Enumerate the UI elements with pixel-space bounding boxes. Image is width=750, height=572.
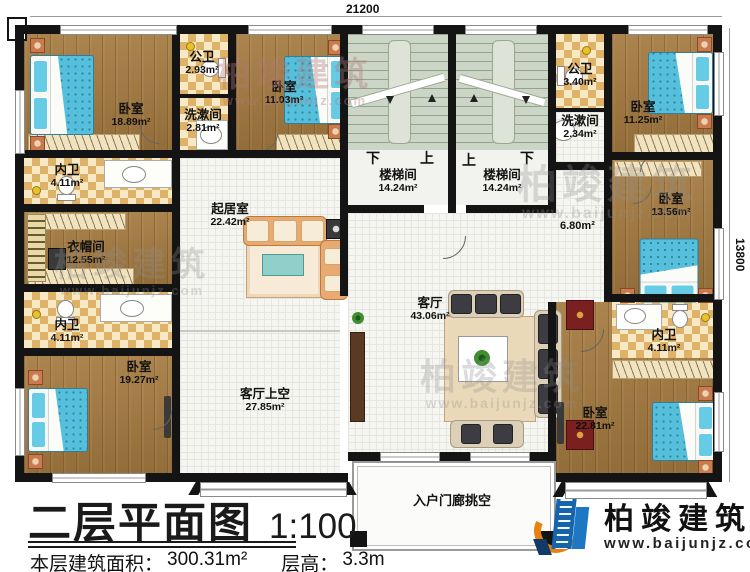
room-label-inner-bath-left-upper: 内卫 4.11m² <box>37 163 97 189</box>
room-label-stairwell-right: 楼梯间 14.24m² <box>462 168 542 194</box>
wall <box>24 348 172 356</box>
room-label-public-bath-top: 公卫 2.93m² <box>177 50 227 76</box>
room-label-bedroom-tl: 卧室 18.89m² <box>96 102 166 128</box>
room-label-stairwell-left: 楼梯间 14.24m² <box>358 168 438 194</box>
room-label-public-bath-right: 公卫 3.40m² <box>552 62 608 88</box>
room-label-living-upper: 起居室 22.42m² <box>195 202 265 228</box>
wall <box>24 150 172 158</box>
stair-down-label: 下 <box>366 148 380 168</box>
window <box>714 392 724 452</box>
company-logo: 柏竣建筑 www.baijunjz.com <box>536 497 750 559</box>
wall <box>556 108 604 112</box>
window <box>15 388 25 456</box>
window <box>380 452 440 462</box>
stair-up-label: 上 <box>420 148 434 168</box>
window <box>60 25 177 35</box>
wall <box>348 205 424 213</box>
wall <box>340 34 348 296</box>
bottom-wall-right <box>556 473 722 482</box>
company-logo-brand: 柏竣建筑 <box>604 504 750 536</box>
corridor-area-label: 6.80m² <box>560 220 595 232</box>
room-label-bedroom-top-mid: 卧室 11.03m² <box>249 80 319 106</box>
floor-height-value: 3.3m <box>342 549 384 572</box>
window <box>52 473 146 483</box>
right-dimension-line <box>729 28 730 482</box>
room-label-inner-bath-left-lower: 内卫 4.11m² <box>37 318 97 344</box>
wall <box>172 34 180 482</box>
floor-height-label: 层高： <box>281 549 338 572</box>
room-label-washroom-right: 洗漱间 2.34m² <box>552 114 608 140</box>
company-logo-url: www.baijunjz.com <box>604 535 750 552</box>
wall <box>606 294 713 302</box>
wall <box>180 150 340 158</box>
stair-up-label: 上 <box>462 150 476 170</box>
wall <box>466 205 556 213</box>
room-label-bedroom-tr: 卧室 11.25m² <box>608 100 678 126</box>
stair-down-label: 下 <box>520 148 534 168</box>
wall <box>448 34 456 213</box>
wall <box>24 284 172 292</box>
title-underline <box>28 546 296 548</box>
floor-area-label: 本层建筑面积： <box>30 549 163 572</box>
top-dimension-line <box>30 16 722 17</box>
wall <box>24 204 172 212</box>
right-dimension-label: 13800 <box>733 238 747 271</box>
title-underline <box>28 541 296 543</box>
room-label-cloakroom: 衣帽间 12.55m² <box>46 240 126 266</box>
wall <box>180 94 228 98</box>
window <box>628 25 708 35</box>
window <box>15 90 25 154</box>
window <box>362 25 434 35</box>
floor-area-value: 300.31m² <box>167 549 247 572</box>
top-dimension-label: 21200 <box>346 2 379 16</box>
company-logo-icon <box>536 497 594 559</box>
room-label-living-void: 客厅上空 27.85m² <box>215 387 315 413</box>
window <box>465 25 537 35</box>
window <box>248 25 332 35</box>
wall <box>556 162 604 170</box>
floor-info: 本层建筑面积： 300.31m² 层高： 3.3m <box>30 549 385 572</box>
room-label-living-room: 客厅 43.06m² <box>395 296 465 322</box>
entry-porch-label: 入户门廊挑空 <box>396 490 508 509</box>
room-label-inner-bath-right: 内卫 4.11m² <box>629 328 699 354</box>
window <box>714 52 724 116</box>
room-label-bedroom-bl: 卧室 19.27m² <box>104 360 174 386</box>
window <box>714 228 724 300</box>
room-label-bedroom-br: 卧室 22.81m² <box>560 406 630 432</box>
room-label-washroom-top: 洗漱间 2.81m² <box>176 108 230 134</box>
wall <box>228 34 236 158</box>
floor-plan-page: 21200 13800 <box>0 0 750 572</box>
room-label-bedroom-right-mid: 卧室 13.56m² <box>636 192 706 218</box>
wall <box>612 152 713 160</box>
wall <box>548 302 556 460</box>
window <box>470 452 530 462</box>
